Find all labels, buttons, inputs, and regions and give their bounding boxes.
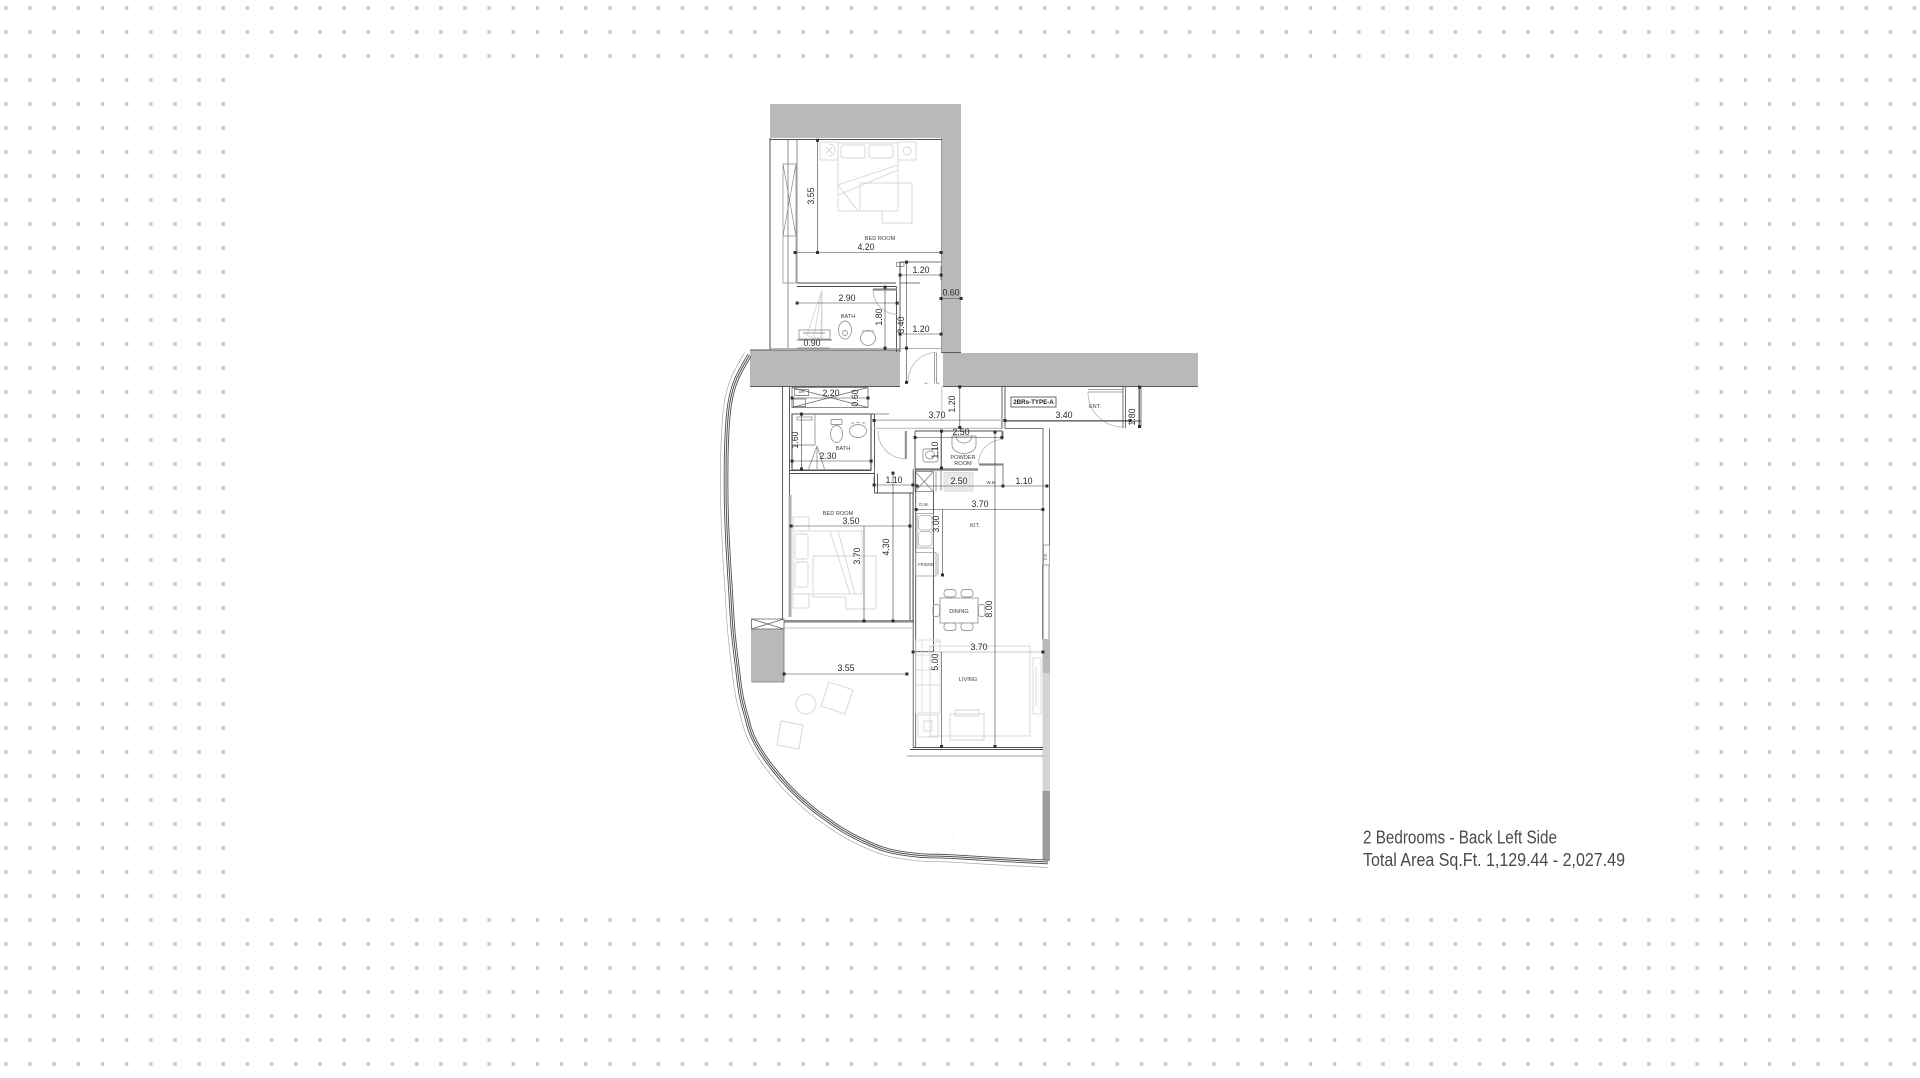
svg-text:2BRs-TYPE-A: 2BRs-TYPE-A	[1013, 399, 1054, 406]
svg-text:2.50: 2.50	[950, 476, 967, 486]
svg-text:2.50: 2.50	[952, 427, 969, 437]
svg-text:4.30: 4.30	[881, 538, 891, 555]
svg-text:3.55: 3.55	[806, 187, 816, 204]
svg-text:KIT.: KIT.	[970, 523, 980, 529]
svg-text:1.80: 1.80	[874, 308, 884, 325]
svg-text:3.40: 3.40	[896, 316, 906, 333]
svg-text:4.20: 4.20	[857, 242, 874, 252]
svg-text:W.M: W.M	[987, 480, 996, 485]
svg-text:3.70: 3.70	[970, 642, 987, 652]
svg-text:BATH: BATH	[841, 314, 856, 320]
svg-text:1.10: 1.10	[930, 441, 940, 458]
svg-text:3.70: 3.70	[852, 547, 862, 564]
svg-text:8.00: 8.00	[984, 600, 994, 617]
svg-text:3.50: 3.50	[842, 516, 859, 526]
svg-text:0.60: 0.60	[942, 288, 959, 298]
svg-text:3.40: 3.40	[1055, 410, 1072, 420]
svg-text:0.90: 0.90	[803, 338, 820, 348]
svg-text:3.00: 3.00	[931, 515, 941, 532]
svg-text:1.20: 1.20	[947, 395, 957, 412]
svg-text:BED ROOM: BED ROOM	[823, 511, 854, 517]
svg-text:BED ROOM: BED ROOM	[865, 236, 896, 242]
svg-text:1.20: 1.20	[912, 265, 929, 275]
svg-text:2.30: 2.30	[819, 451, 836, 461]
svg-text:1.80: 1.80	[1127, 408, 1137, 425]
svg-text:ENT.: ENT.	[1089, 404, 1102, 410]
svg-text:1.10: 1.10	[885, 475, 902, 485]
svg-text:2.90: 2.90	[838, 293, 855, 303]
svg-text:3.70: 3.70	[971, 499, 988, 509]
svg-text:5.00: 5.00	[930, 653, 940, 670]
svg-text:2.20: 2.20	[822, 388, 839, 398]
svg-text:3.70: 3.70	[928, 410, 945, 420]
svg-text:3.55: 3.55	[837, 663, 854, 673]
svg-text:DINING: DINING	[949, 609, 969, 615]
svg-text:Total Area Sq.Ft. 1,129.44 - 2: Total Area Sq.Ft. 1,129.44 - 2,027.49	[1363, 850, 1625, 870]
svg-text:LIVING: LIVING	[959, 677, 977, 683]
svg-text:0.60: 0.60	[850, 389, 860, 406]
svg-text:ROOM: ROOM	[954, 461, 972, 467]
svg-text:FRIDGE: FRIDGE	[918, 562, 934, 567]
svg-text:D.W.: D.W.	[919, 502, 929, 507]
svg-text:BATH: BATH	[836, 446, 851, 452]
svg-text:2 Bedrooms - Back Left Side: 2 Bedrooms - Back Left Side	[1363, 828, 1557, 848]
svg-text:1.10: 1.10	[1015, 476, 1032, 486]
svg-text:1.60: 1.60	[790, 431, 800, 448]
svg-text:D.B: D.B	[1044, 553, 1048, 560]
svg-text:1.20: 1.20	[912, 324, 929, 334]
svg-text:DR: DR	[799, 390, 805, 394]
